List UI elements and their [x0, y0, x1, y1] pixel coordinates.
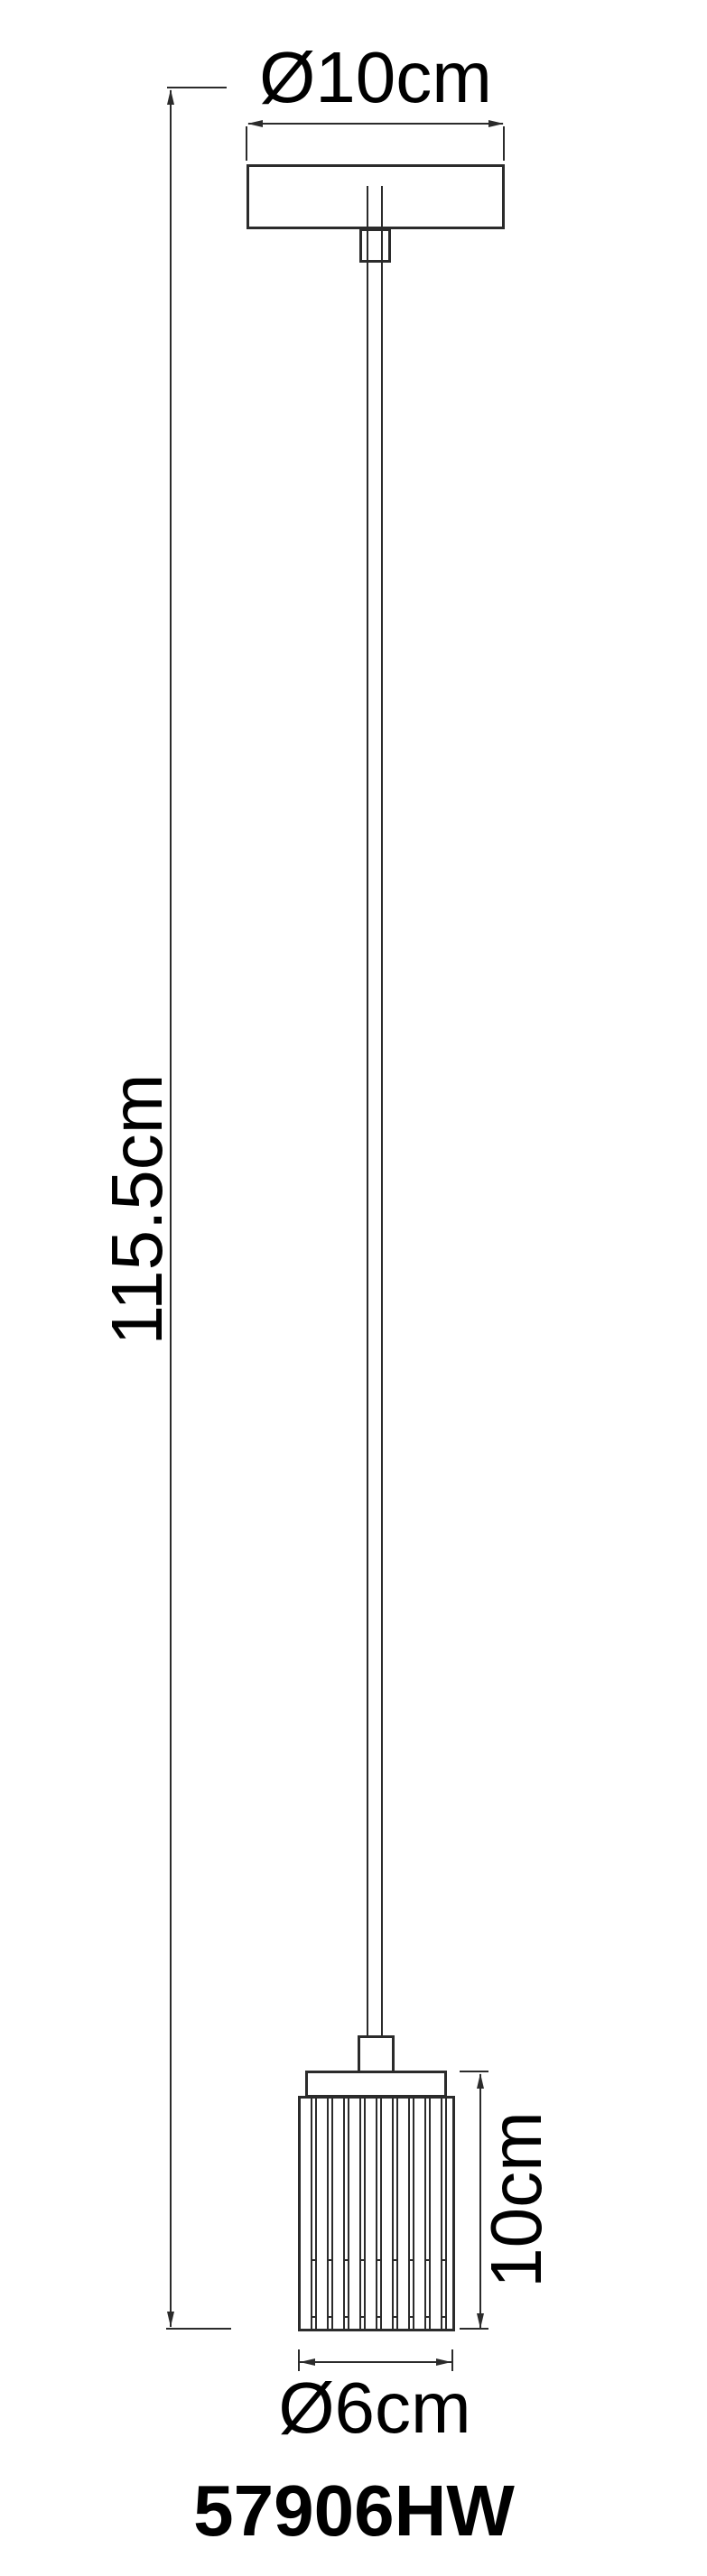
- shade-top-cap: [305, 2071, 447, 2098]
- shade-height-label: 10cm: [477, 1974, 556, 2425]
- canopy-diameter-label: Ø10cm: [150, 38, 601, 117]
- suspension-cable: [367, 186, 383, 2035]
- extension-line-bottom: [166, 2328, 231, 2330]
- arrowhead-up-icon: [167, 89, 174, 105]
- arrowhead-down-icon: [167, 2312, 174, 2327]
- dimension-diagram-canvas: Ø10cm 115.5cm 10cm Ø6cm 57906HW: [0, 0, 707, 2576]
- arrowhead-right-icon: [436, 2358, 451, 2366]
- extension-line: [503, 126, 505, 161]
- arrowhead-right-icon: [488, 120, 504, 127]
- arrowhead-left-icon: [247, 120, 263, 127]
- canopy-diameter-dimension-line: [248, 123, 503, 125]
- arrowhead-left-icon: [300, 2358, 315, 2366]
- shade-diameter-label: Ø6cm: [149, 2368, 600, 2448]
- overall-height-label: 115.5cm: [98, 984, 177, 1435]
- ribbed-shade-body: [298, 2096, 455, 2331]
- lamp-socket: [358, 2035, 395, 2073]
- extension-line: [246, 126, 247, 161]
- extension-line-top: [167, 87, 227, 88]
- shade-diameter-dimension-line: [300, 2361, 451, 2363]
- shade-rib-slats: [301, 2099, 452, 2329]
- model-number-label: 57906HW: [128, 2471, 580, 2551]
